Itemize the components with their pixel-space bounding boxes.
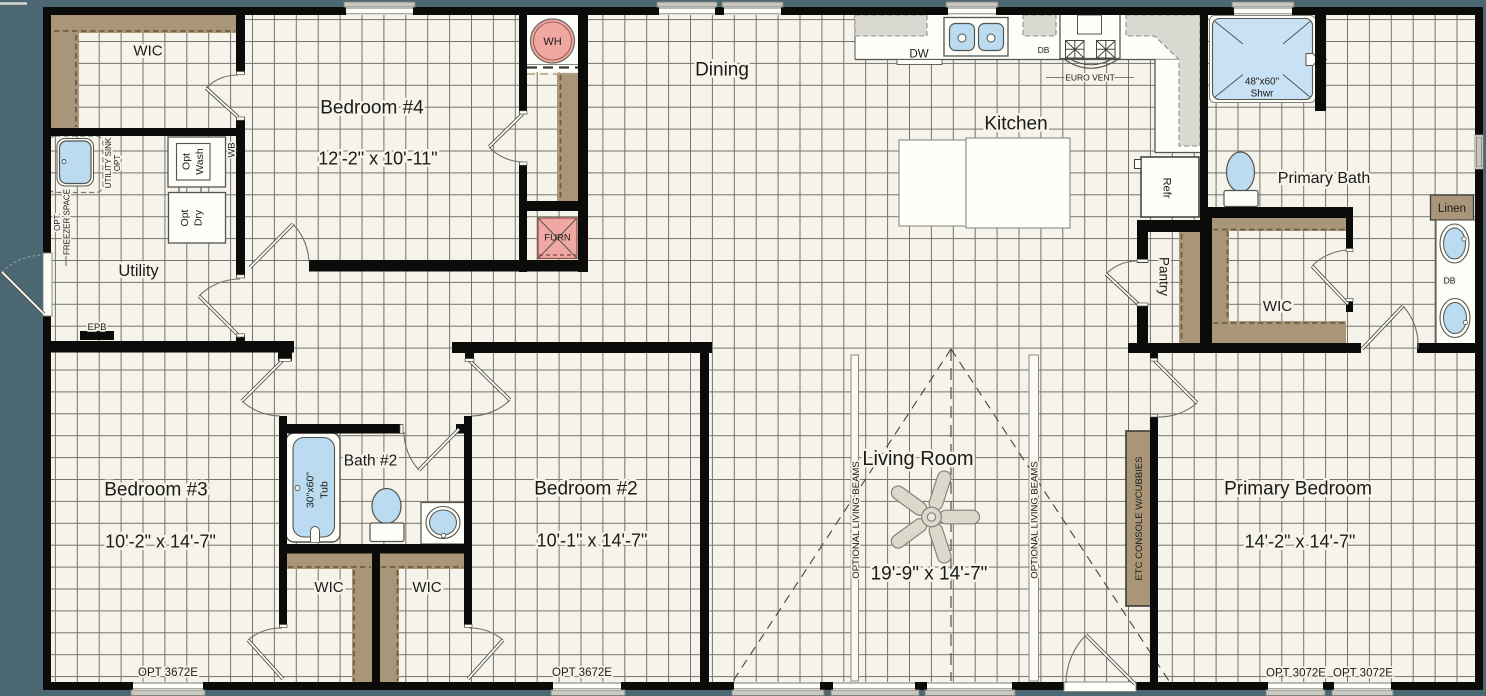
svg-text:ETC CONSOLE W/CUBBIES: ETC CONSOLE W/CUBBIES xyxy=(1134,456,1145,580)
svg-text:14'-2" x 14'-7": 14'-2" x 14'-7" xyxy=(1245,531,1356,551)
svg-text:EPB: EPB xyxy=(87,322,106,333)
svg-text:Bedroom #2: Bedroom #2 xyxy=(534,479,638,500)
svg-text:WIC: WIC xyxy=(133,42,162,59)
svg-text:Bedroom #4: Bedroom #4 xyxy=(320,98,424,119)
svg-text:10'-2" x 14'-7": 10'-2" x 14'-7" xyxy=(105,531,216,551)
svg-text:Pantry: Pantry xyxy=(1156,257,1171,296)
svg-text:30"x60": 30"x60" xyxy=(305,472,317,508)
svg-text:Shwr: Shwr xyxy=(1251,89,1274,100)
svg-text:Bath #2: Bath #2 xyxy=(344,452,397,469)
svg-text:DB: DB xyxy=(1444,275,1456,285)
svg-text:Opt: Opt xyxy=(179,209,191,226)
svg-text:Living Room: Living Room xyxy=(862,448,973,470)
svg-text:OPT 3072E: OPT 3072E xyxy=(1333,668,1393,680)
svg-text:WIC: WIC xyxy=(314,579,343,596)
svg-text:OPT 3672E: OPT 3672E xyxy=(138,667,198,679)
svg-text:OPTIONAL LIVING BEAMS: OPTIONAL LIVING BEAMS xyxy=(851,461,862,578)
svg-text:Refr: Refr xyxy=(1161,178,1173,199)
svg-text:Dry: Dry xyxy=(193,209,205,226)
svg-text:OPT 3072E: OPT 3072E xyxy=(1266,668,1326,680)
svg-text:EURO VENT: EURO VENT xyxy=(1065,72,1115,82)
svg-text:UTILITY SINK: UTILITY SINK xyxy=(104,137,113,188)
svg-text:10'-1" x 14'-7": 10'-1" x 14'-7" xyxy=(537,530,648,550)
svg-text:WIC: WIC xyxy=(412,579,441,596)
svg-text:OPT.: OPT. xyxy=(53,213,62,231)
svg-text:WH: WH xyxy=(543,36,561,48)
svg-text:Wash: Wash xyxy=(194,148,206,175)
svg-text:48"x60": 48"x60" xyxy=(1245,77,1280,88)
svg-text:DB: DB xyxy=(1038,45,1050,55)
svg-text:OPTIONAL LIVING BEAMS: OPTIONAL LIVING BEAMS xyxy=(1029,461,1040,578)
svg-text:19'-9" x 14'-7": 19'-9" x 14'-7" xyxy=(871,564,988,585)
svg-text:Kitchen: Kitchen xyxy=(984,114,1047,135)
svg-text:12'-2" x 10'-11": 12'-2" x 10'-11" xyxy=(318,148,437,168)
svg-text:Bedroom #3: Bedroom #3 xyxy=(104,480,208,501)
svg-text:Tub: Tub xyxy=(319,481,331,499)
svg-text:Linen: Linen xyxy=(1438,203,1466,215)
svg-text:Primary Bedroom: Primary Bedroom xyxy=(1224,479,1372,500)
svg-text:Dining: Dining xyxy=(695,60,749,81)
svg-text:Opt: Opt xyxy=(181,153,193,170)
svg-text:WIC: WIC xyxy=(1263,298,1292,315)
svg-text:FURN: FURN xyxy=(544,232,571,243)
svg-text:Primary Bath: Primary Bath xyxy=(1278,170,1370,187)
svg-text:OPT: OPT xyxy=(113,155,122,172)
svg-text:FREEZER SPACE: FREEZER SPACE xyxy=(63,189,72,255)
svg-text:WB: WB xyxy=(226,142,237,157)
svg-text:Utility: Utility xyxy=(118,262,159,280)
svg-text:OPT 3672E: OPT 3672E xyxy=(552,667,612,679)
svg-text:DW: DW xyxy=(909,48,928,60)
